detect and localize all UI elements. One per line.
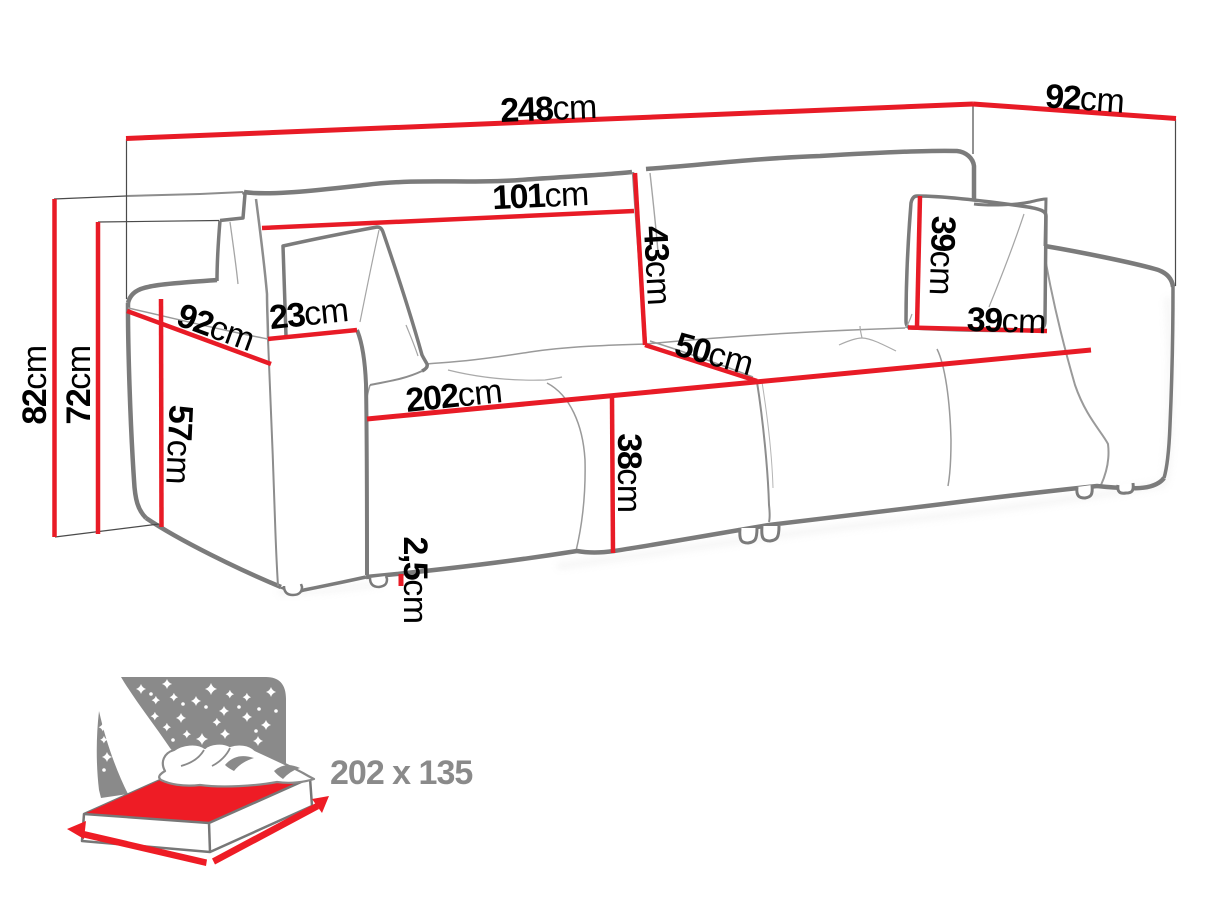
svg-text:101cm: 101cm bbox=[491, 175, 589, 217]
svg-text:43cm: 43cm bbox=[636, 225, 678, 306]
svg-text:39cm: 39cm bbox=[922, 215, 963, 295]
svg-text:2,5cm: 2,5cm bbox=[396, 536, 434, 623]
svg-text:39cm: 39cm bbox=[966, 301, 1046, 342]
svg-text:248cm: 248cm bbox=[500, 88, 598, 130]
svg-text:92cm: 92cm bbox=[1044, 77, 1126, 120]
svg-text:57cm: 57cm bbox=[158, 404, 199, 485]
svg-text:38cm: 38cm bbox=[610, 433, 648, 512]
svg-text:202 x 135: 202 x 135 bbox=[330, 754, 472, 792]
svg-text:72cm: 72cm bbox=[60, 345, 98, 424]
svg-text:82cm: 82cm bbox=[16, 345, 54, 424]
